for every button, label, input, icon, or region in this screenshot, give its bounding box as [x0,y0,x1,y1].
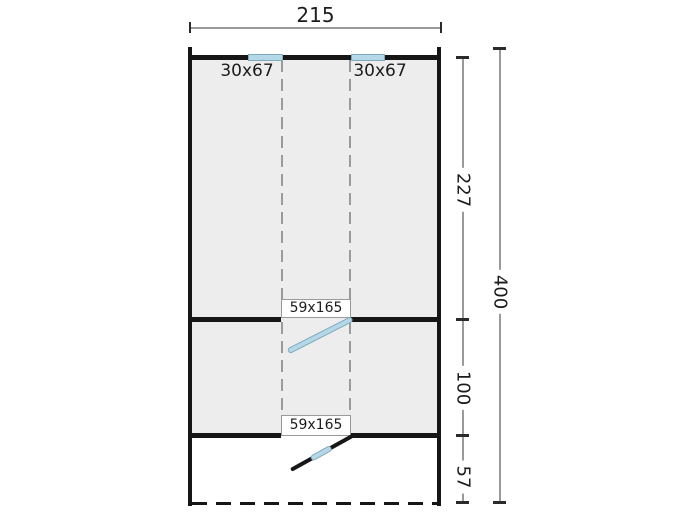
dimension-400-value: 400 [489,270,512,314]
room-interior-fill [192,60,437,433]
wall-middle-right-segment [351,317,441,322]
window-right-label: 30x67 [337,61,423,81]
partition-dashed-line-lower-left [281,322,283,415]
dimension-top-line [190,27,441,29]
floor-plan-canvas: 30x67 30x67 59x165 59x165 215 227 100 57… [0,0,700,525]
window-right-glazing [351,54,385,61]
wall-top [188,55,441,60]
dimension-227-value: 227 [452,168,475,212]
dimension-right-outer-tick-top [493,47,506,50]
wall-middle-left-segment [188,317,281,322]
partition-dashed-line-upper-left [281,60,283,300]
dimension-right-inner-tick-2 [456,318,469,321]
door-front-leaf-glazing [310,445,333,461]
dimension-right-inner-tick-1 [456,56,469,59]
dimension-top-value: 215 [190,3,441,27]
dimension-right-inner-tick-4 [456,501,469,504]
wall-lower-left-segment [188,433,281,438]
dimension-100-value: 100 [452,366,475,410]
porch-open-edge-dashed [192,502,437,505]
window-left-glazing [248,54,283,61]
door-front-label: 59x165 [281,415,351,436]
door-front-leaf [290,434,354,472]
partition-dashed-line-lower-right [349,322,351,415]
door-middle-label: 59x165 [281,299,351,318]
partition-dashed-line-upper-right [349,60,351,300]
dimension-right-inner-tick-3 [456,434,469,437]
dimension-57-value: 57 [452,461,475,494]
wall-lower-right-segment [351,433,441,438]
dimension-right-inner-line [462,58,464,504]
window-left-label: 30x67 [204,61,290,81]
dimension-right-outer-tick-bottom [493,501,506,504]
